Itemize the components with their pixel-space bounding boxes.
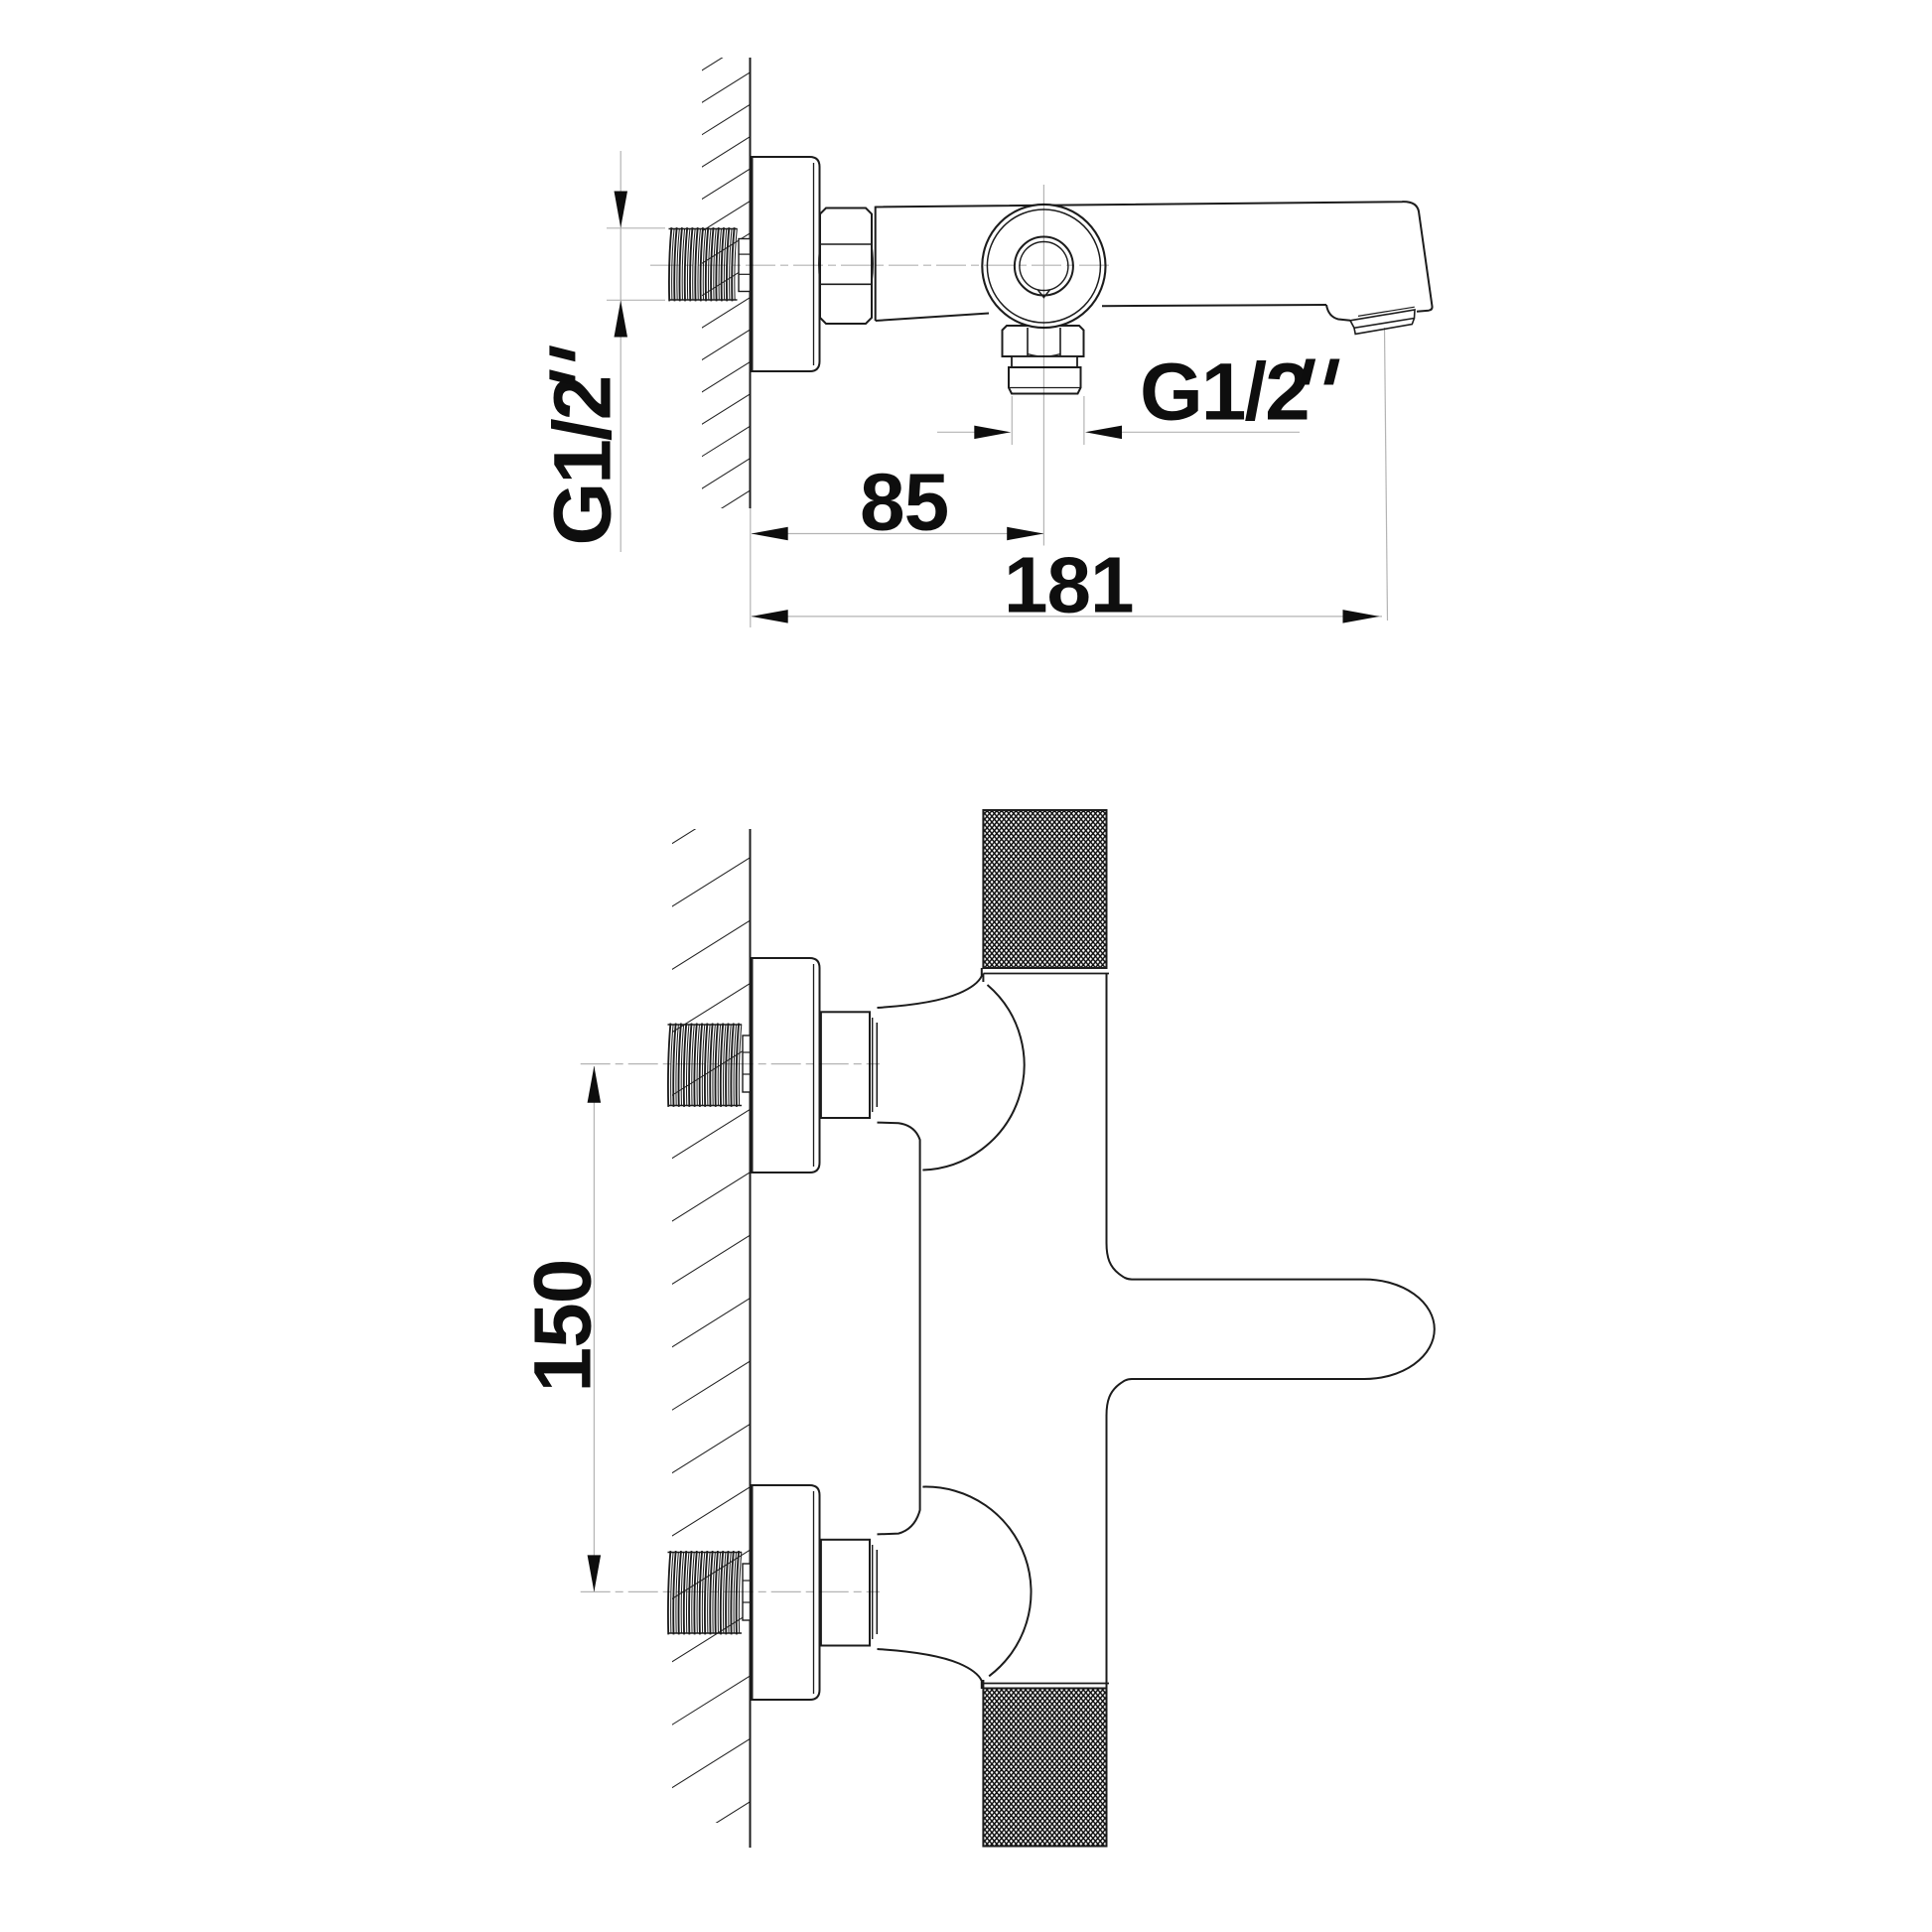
svg-text:G1/2: G1/2 [1140,347,1309,438]
svg-text:85: 85 [860,458,948,548]
svg-text:150: 150 [518,1260,609,1393]
svg-text:G1/2: G1/2 [538,377,628,546]
svg-text:181: 181 [1004,540,1133,628]
